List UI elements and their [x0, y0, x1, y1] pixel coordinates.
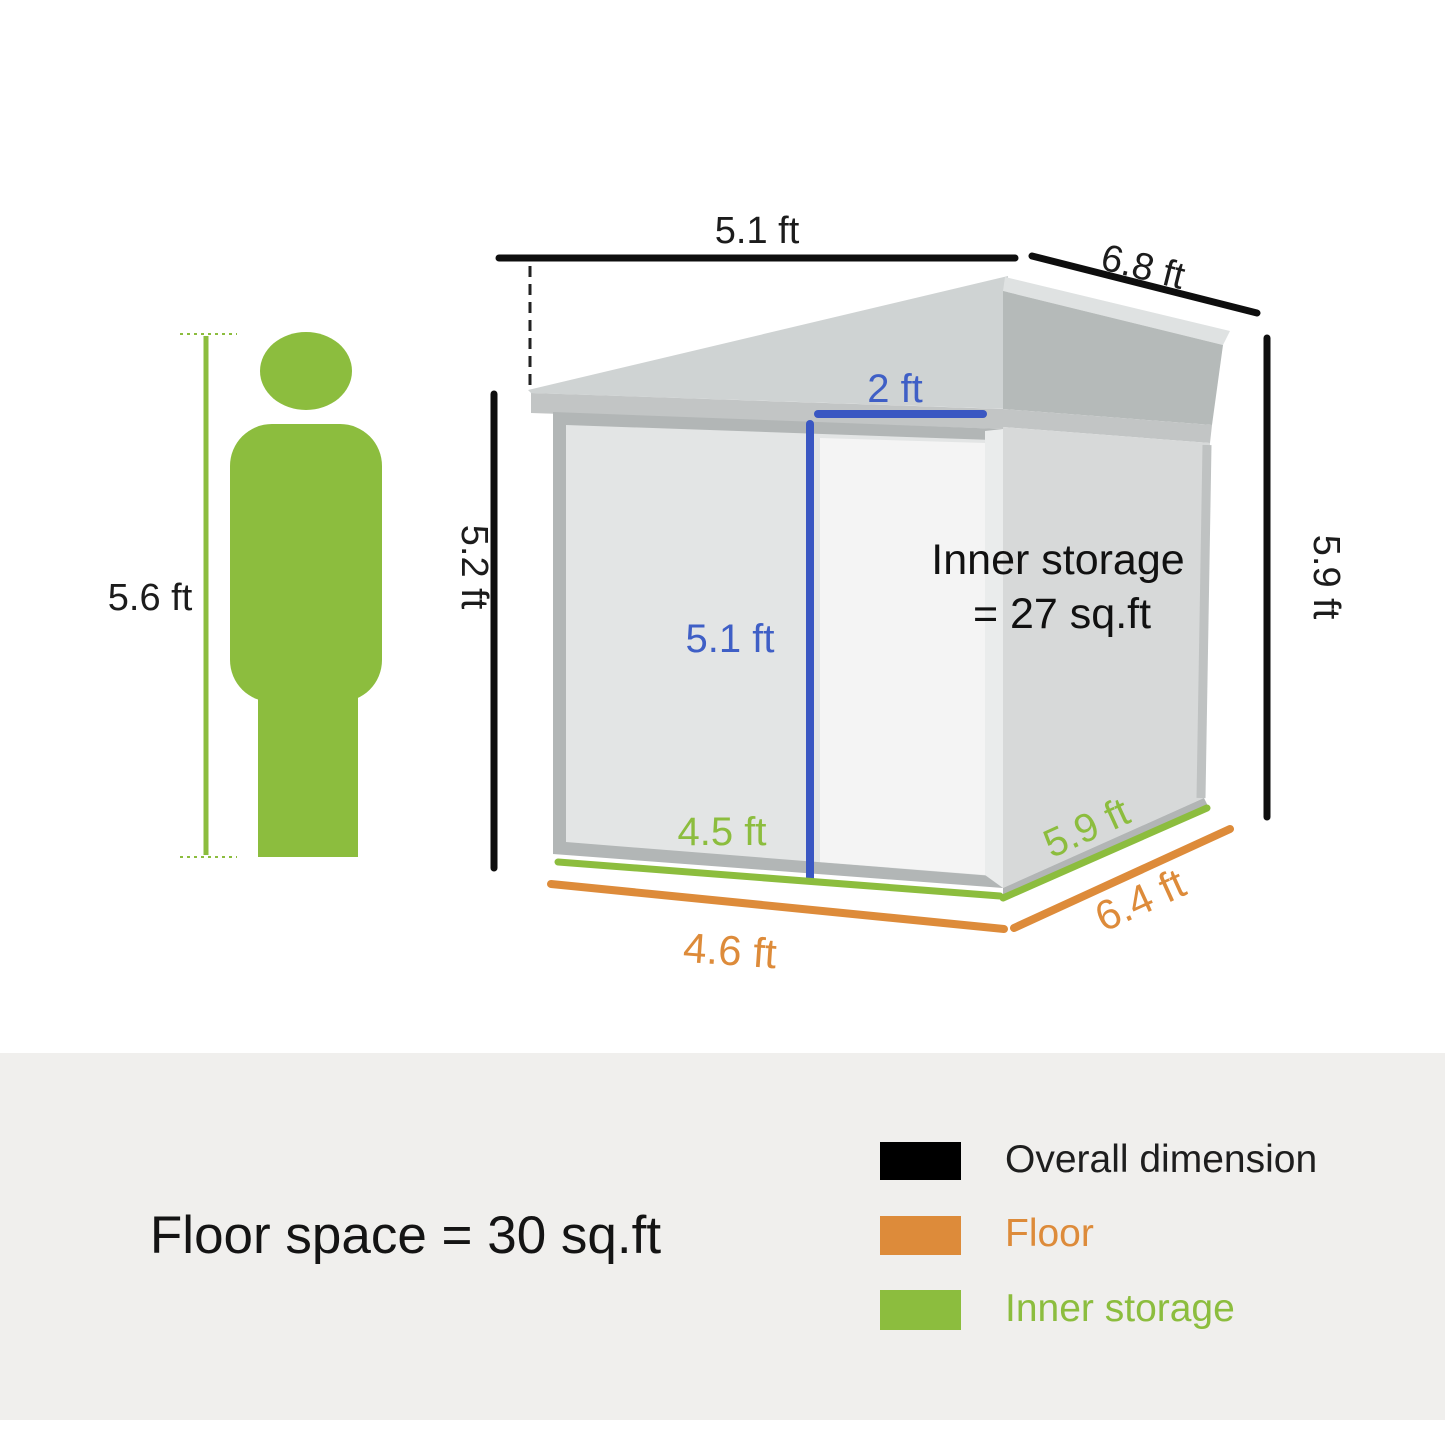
- floor-swatch: [880, 1216, 961, 1255]
- overall-back-height-label: 5.9 ft: [1305, 535, 1347, 620]
- person-head: [260, 332, 352, 410]
- door-height-label: 5.1 ft: [686, 617, 775, 661]
- shed-roof-slope: [528, 276, 1008, 409]
- person-height-measure: 5.6 ft: [108, 334, 237, 857]
- door-width-label: 2 ft: [867, 367, 923, 411]
- overall-dimension-swatch: [880, 1142, 961, 1180]
- floor-front-label: 4.6 ft: [682, 924, 779, 977]
- overall-dimension-legend-label: Overall dimension: [1005, 1138, 1317, 1182]
- inner-storage-swatch: [880, 1290, 961, 1330]
- inner-storage-note-line2: = 27 sq.ft: [973, 590, 1151, 638]
- overall-front-height-label: 5.2 ft: [453, 525, 495, 610]
- shed-door: [820, 438, 985, 875]
- inner-front-label: 4.5 ft: [678, 810, 767, 854]
- floor-legend-label: Floor: [1005, 1212, 1094, 1256]
- floor-space-label: Floor space = 30 sq.ft: [118, 1205, 693, 1266]
- shed-right-edge-trim: [1201, 445, 1207, 798]
- shed-diagram-canvas: 5.6 ft: [0, 0, 1445, 1070]
- person-height-label: 5.6 ft: [108, 577, 193, 619]
- shed-corner-trim: [985, 429, 1003, 888]
- inner-storage-legend-label: Inner storage: [1005, 1287, 1235, 1331]
- person-legs: [258, 630, 358, 857]
- overall-front-width-label: 5.1 ft: [715, 210, 800, 252]
- person-figure: [230, 332, 382, 857]
- inner-storage-note-line1: Inner storage: [931, 536, 1184, 584]
- overall-depth-label: 6.8 ft: [1097, 237, 1190, 298]
- shed-dimension-infographic: 5.6 ft: [0, 0, 1445, 1445]
